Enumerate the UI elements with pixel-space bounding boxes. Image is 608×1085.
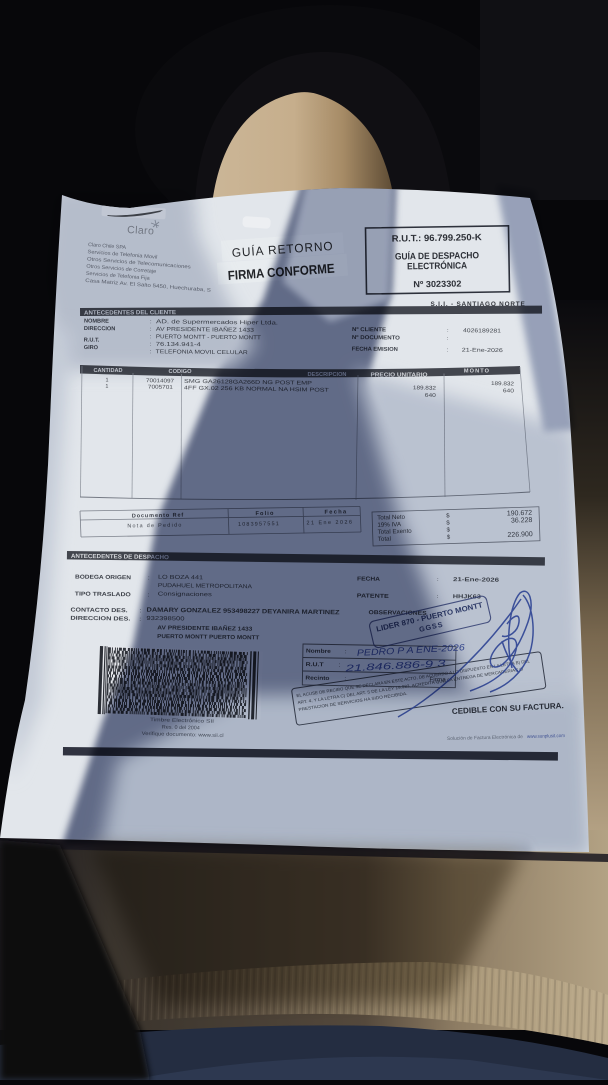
svg-text:TIPO TRASLADO: TIPO TRASLADO [75, 591, 132, 598]
svg-text:21-Ene-2026: 21-Ene-2026 [462, 348, 503, 354]
svg-text:MONTO: MONTO [464, 369, 490, 375]
svg-text:7005701: 7005701 [148, 384, 173, 390]
svg-text:R.U.T.: 96.799.250-K: R.U.T.: 96.799.250-K [392, 232, 483, 243]
svg-text:CONTACTO DES.: CONTACTO DES. [71, 607, 129, 614]
svg-text:BODEGA ORIGEN: BODEGA ORIGEN [75, 575, 131, 582]
svg-text:640: 640 [503, 388, 514, 394]
svg-text:DIRECCION DES.: DIRECCION DES. [70, 616, 131, 623]
svg-text:1: 1 [105, 377, 108, 383]
svg-text:4026189281: 4026189281 [463, 328, 501, 334]
svg-text:ELECTRÓNICA: ELECTRÓNICA [407, 259, 467, 271]
svg-text:CODIGO: CODIGO [169, 369, 193, 375]
svg-text:189.832: 189.832 [491, 381, 514, 387]
svg-text:Nº 3023302: Nº 3023302 [413, 279, 461, 290]
svg-text:1: 1 [105, 384, 108, 390]
